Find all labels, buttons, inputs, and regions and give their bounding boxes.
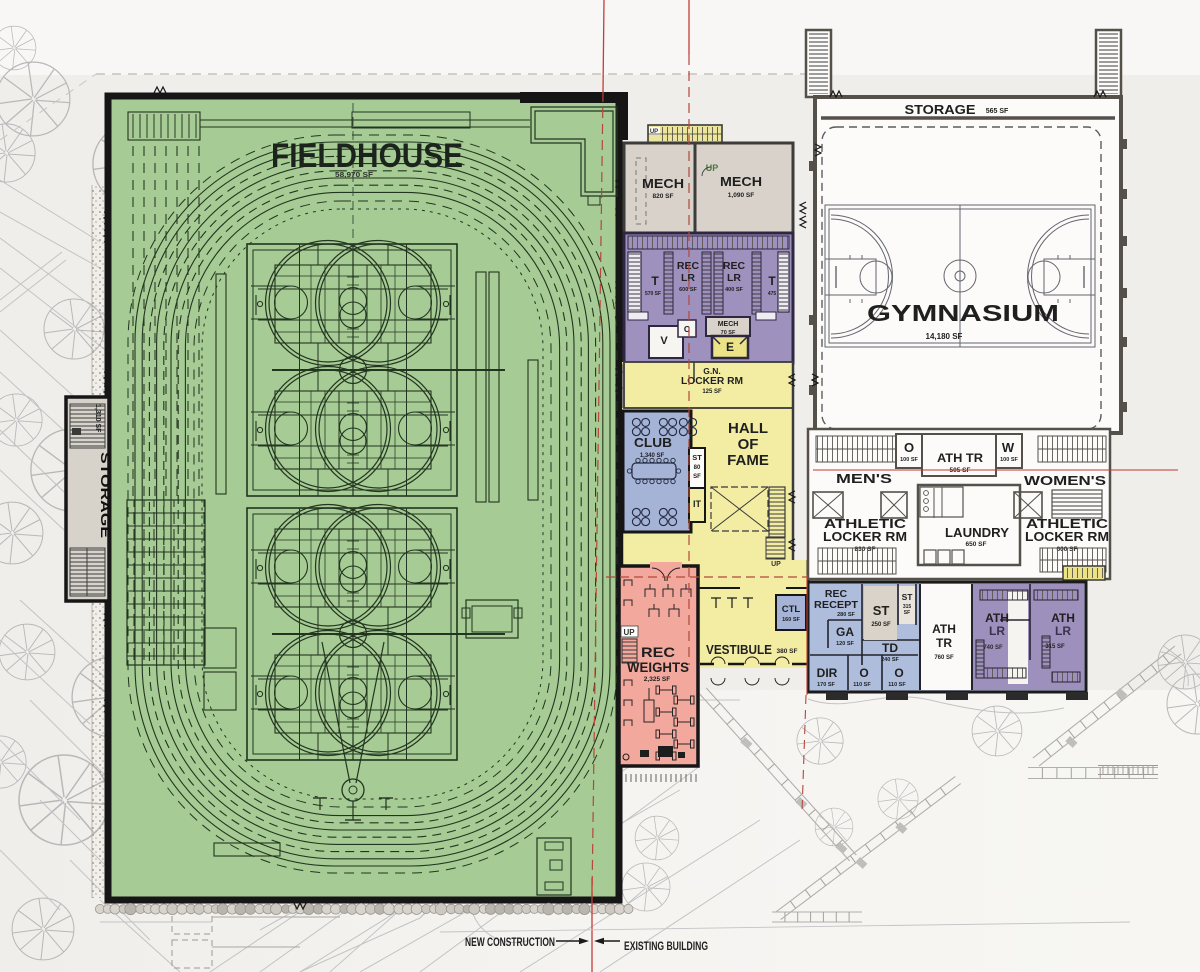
- svg-text:LR: LR: [727, 272, 741, 284]
- svg-text:LR: LR: [989, 624, 1005, 638]
- svg-text:LOCKER RM: LOCKER RM: [681, 375, 743, 387]
- svg-text:ST: ST: [873, 603, 890, 618]
- svg-text:W: W: [1002, 440, 1015, 455]
- svg-text:TD: TD: [882, 641, 898, 655]
- svg-text:100 SF: 100 SF: [1000, 457, 1018, 463]
- svg-text:1,090 SF: 1,090 SF: [728, 192, 754, 199]
- svg-text:600 SF: 600 SF: [679, 287, 697, 293]
- svg-text:ATH: ATH: [985, 611, 1009, 625]
- svg-text:DIR: DIR: [817, 666, 838, 680]
- svg-text:740 SF: 740 SF: [983, 645, 1003, 651]
- svg-text:110 SF: 110 SF: [888, 682, 906, 688]
- svg-text:240 SF: 240 SF: [881, 657, 899, 663]
- svg-text:STORAGE: STORAGE: [905, 102, 976, 117]
- svg-text:NEW CONSTRUCTION: NEW CONSTRUCTION: [465, 935, 555, 949]
- svg-text:315 SF: 315 SF: [1045, 644, 1065, 650]
- svg-text:WEIGHTS: WEIGHTS: [627, 659, 689, 675]
- svg-text:110 SF: 110 SF: [853, 682, 871, 688]
- svg-text:FAME: FAME: [727, 452, 769, 469]
- svg-text:760 SF: 760 SF: [934, 655, 954, 661]
- svg-text:RECEPT: RECEPT: [814, 599, 859, 611]
- svg-text:280 SF: 280 SF: [837, 612, 855, 618]
- svg-text:UP: UP: [771, 561, 781, 568]
- svg-text:O: O: [859, 666, 868, 680]
- svg-text:380 SF: 380 SF: [777, 648, 798, 655]
- svg-text:ATH: ATH: [1051, 611, 1075, 625]
- svg-text:HALL: HALL: [728, 420, 768, 437]
- svg-text:ATH: ATH: [932, 622, 956, 636]
- svg-text:REC: REC: [641, 644, 675, 660]
- svg-text:TR: TR: [936, 636, 952, 650]
- svg-text:250 SF: 250 SF: [871, 622, 891, 628]
- svg-text:V: V: [660, 335, 668, 347]
- svg-text:STORAGE: STORAGE: [98, 452, 113, 538]
- svg-text:400 SF: 400 SF: [725, 287, 743, 293]
- svg-text:650 SF: 650 SF: [966, 541, 987, 548]
- svg-text:1,340 SF: 1,340 SF: [640, 453, 665, 459]
- svg-text:14,180 SF: 14,180 SF: [926, 332, 963, 341]
- svg-text:MECH: MECH: [718, 321, 739, 328]
- svg-text:570 SF: 570 SF: [645, 291, 661, 297]
- svg-text:ST: ST: [692, 453, 702, 462]
- svg-text:LOCKER RM: LOCKER RM: [1025, 529, 1109, 544]
- svg-text:LOCKER RM: LOCKER RM: [823, 529, 907, 544]
- svg-text:VESTIBULE: VESTIBULE: [706, 643, 772, 657]
- svg-text:80: 80: [694, 465, 701, 471]
- svg-text:ST: ST: [902, 592, 914, 602]
- svg-text:125 SF: 125 SF: [702, 389, 722, 395]
- svg-text:MECH: MECH: [720, 175, 762, 189]
- svg-text:UP: UP: [623, 628, 635, 637]
- svg-text:OF: OF: [738, 436, 759, 453]
- svg-text:REC: REC: [677, 260, 700, 272]
- svg-text:170 SF: 170 SF: [817, 682, 835, 688]
- svg-text:475: 475: [768, 291, 777, 297]
- svg-text:E: E: [726, 340, 734, 354]
- svg-text:2,325 SF: 2,325 SF: [644, 676, 670, 683]
- svg-text:MEN'S: MEN'S: [836, 471, 892, 486]
- svg-text:820 SF: 820 SF: [653, 193, 674, 200]
- svg-text:SF: SF: [693, 474, 701, 480]
- svg-text:ATH TR: ATH TR: [937, 453, 984, 465]
- svg-text:GA: GA: [836, 625, 854, 639]
- svg-text:WOMEN'S: WOMEN'S: [1024, 473, 1106, 488]
- svg-text:LR: LR: [1055, 624, 1071, 638]
- svg-text:SF: SF: [904, 610, 910, 616]
- svg-text:100 SF: 100 SF: [900, 457, 918, 463]
- svg-text:EXISTING BUILDING: EXISTING BUILDING: [624, 939, 708, 953]
- svg-text:120 SF: 120 SF: [836, 641, 854, 647]
- svg-text:CLUB: CLUB: [634, 436, 672, 450]
- svg-text:58,970 SF: 58,970 SF: [335, 170, 373, 179]
- svg-text:O: O: [894, 666, 903, 680]
- svg-text:MECH: MECH: [642, 177, 684, 191]
- svg-text:T: T: [768, 274, 776, 288]
- svg-text:O: O: [904, 440, 914, 455]
- svg-text:REC: REC: [723, 260, 746, 272]
- svg-text:160 SF: 160 SF: [782, 617, 800, 623]
- svg-text:CTL: CTL: [782, 604, 801, 615]
- svg-text:LAUNDRY: LAUNDRY: [945, 525, 1009, 540]
- svg-text:IT: IT: [693, 499, 702, 509]
- svg-text:GYMNASIUM: GYMNASIUM: [867, 300, 1059, 326]
- svg-text:1,310 SF: 1,310 SF: [94, 404, 101, 433]
- svg-text:LR: LR: [681, 272, 695, 284]
- svg-text:T: T: [651, 274, 659, 288]
- svg-text:565 SF: 565 SF: [986, 108, 1009, 115]
